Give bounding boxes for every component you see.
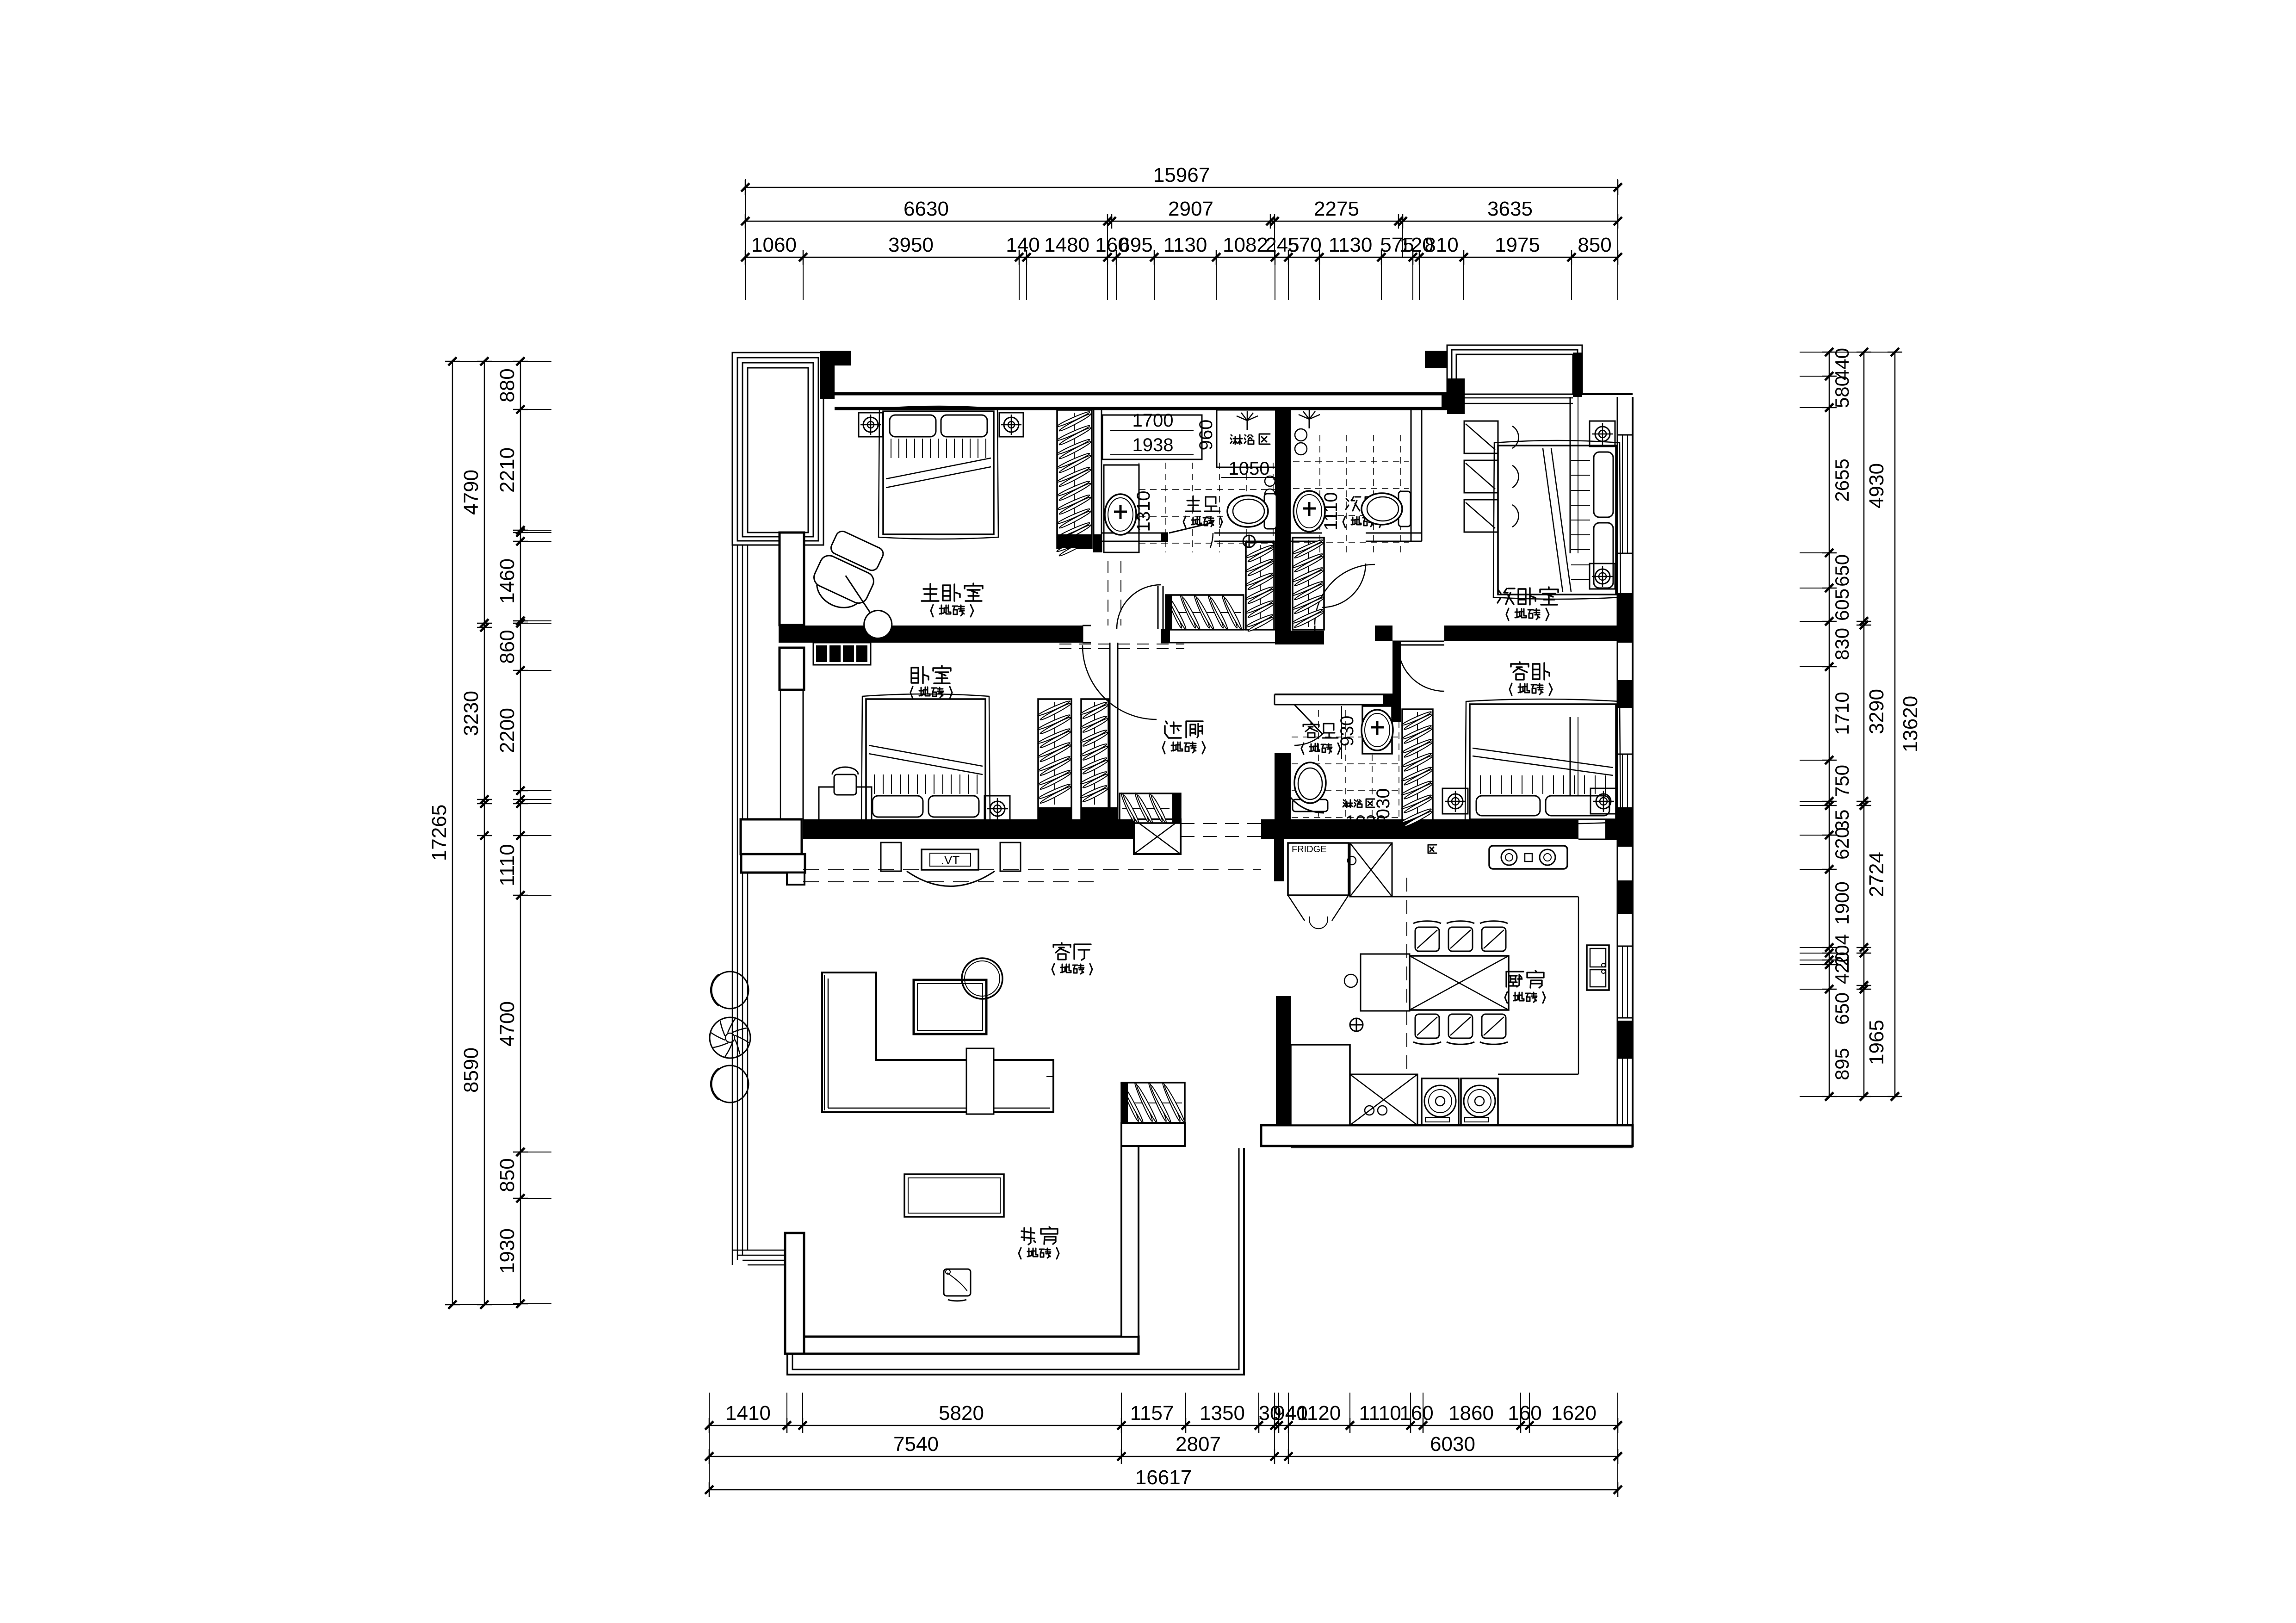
svg-text:1110: 1110	[1321, 492, 1341, 530]
svg-text:7540: 7540	[893, 1433, 939, 1456]
svg-text:1410: 1410	[725, 1402, 771, 1425]
svg-text:1050: 1050	[1229, 458, 1270, 479]
svg-text:1975: 1975	[1495, 234, 1540, 256]
svg-text:1130: 1130	[1329, 234, 1373, 256]
svg-text:930: 930	[1337, 716, 1357, 747]
svg-text:2655: 2655	[1831, 458, 1853, 502]
svg-text:1350: 1350	[1200, 1402, 1245, 1425]
svg-text:830: 830	[1831, 628, 1853, 660]
svg-text:440: 440	[1831, 348, 1853, 380]
svg-text:.VT: .VT	[941, 853, 960, 867]
svg-text:960: 960	[1196, 420, 1216, 451]
svg-text:570: 570	[1287, 234, 1321, 256]
svg-text:1480: 1480	[1044, 234, 1089, 256]
svg-text:420: 420	[1831, 952, 1853, 984]
svg-text:620: 620	[1831, 827, 1853, 860]
svg-text:3635: 3635	[1487, 198, 1533, 220]
svg-text:1157: 1157	[1130, 1402, 1174, 1425]
svg-text:1130: 1130	[1163, 234, 1207, 256]
svg-text:2275: 2275	[1314, 198, 1359, 220]
svg-text:580: 580	[1831, 376, 1853, 408]
svg-text:695: 695	[1119, 234, 1152, 256]
svg-text:2200: 2200	[496, 708, 519, 753]
svg-text:1860: 1860	[1448, 1402, 1494, 1425]
svg-text:3950: 3950	[888, 234, 934, 256]
svg-text:1310: 1310	[1133, 491, 1154, 532]
svg-text:15967: 15967	[1153, 164, 1210, 186]
svg-text:4700: 4700	[496, 1001, 519, 1047]
svg-text:860: 860	[496, 630, 519, 663]
svg-text:605: 605	[1831, 588, 1853, 621]
svg-text:16617: 16617	[1135, 1466, 1192, 1489]
svg-text:2807: 2807	[1176, 1433, 1221, 1456]
svg-text:750: 750	[1831, 765, 1853, 797]
svg-text:140: 140	[1006, 234, 1040, 256]
svg-text:2724: 2724	[1865, 852, 1888, 897]
svg-text:1965: 1965	[1865, 1020, 1888, 1065]
svg-text:850: 850	[496, 1158, 519, 1192]
svg-text:8590: 8590	[460, 1047, 483, 1093]
svg-text:6030: 6030	[1430, 1433, 1475, 1456]
svg-text:4790: 4790	[460, 470, 483, 515]
svg-text:895: 895	[1831, 1048, 1853, 1080]
svg-text:650: 650	[1831, 992, 1853, 1025]
svg-text:850: 850	[1578, 234, 1611, 256]
svg-text:13620: 13620	[1899, 696, 1922, 752]
svg-text:1460: 1460	[496, 558, 519, 604]
svg-text:650: 650	[1831, 554, 1853, 587]
svg-text:1900: 1900	[1831, 881, 1853, 924]
svg-text:1060: 1060	[751, 234, 797, 256]
svg-text:3290: 3290	[1865, 689, 1888, 734]
svg-text:1938: 1938	[1133, 435, 1174, 455]
svg-text:810: 810	[1424, 234, 1458, 256]
svg-text:6630: 6630	[904, 198, 949, 220]
svg-text:4930: 4930	[1865, 463, 1888, 508]
svg-text:5820: 5820	[939, 1402, 984, 1425]
svg-text:2907: 2907	[1168, 198, 1213, 220]
svg-text:3230: 3230	[460, 691, 483, 736]
svg-text:1700: 1700	[1133, 410, 1174, 431]
svg-text:1082: 1082	[1223, 234, 1268, 256]
svg-text:1110: 1110	[1359, 1402, 1401, 1425]
svg-text:160: 160	[1399, 1402, 1433, 1425]
svg-text:1710: 1710	[1831, 692, 1853, 735]
svg-text:2210: 2210	[496, 447, 519, 493]
svg-text:1120: 1120	[1297, 1402, 1341, 1425]
svg-text:1110: 1110	[496, 844, 519, 886]
svg-text:880: 880	[496, 368, 519, 402]
svg-text:160: 160	[1508, 1402, 1541, 1425]
svg-text:1930: 1930	[496, 1228, 519, 1274]
svg-text:1620: 1620	[1551, 1402, 1597, 1425]
svg-text:17265: 17265	[428, 805, 451, 861]
svg-text:FRIDGE: FRIDGE	[1292, 844, 1327, 855]
svg-text:1030: 1030	[1373, 788, 1393, 830]
